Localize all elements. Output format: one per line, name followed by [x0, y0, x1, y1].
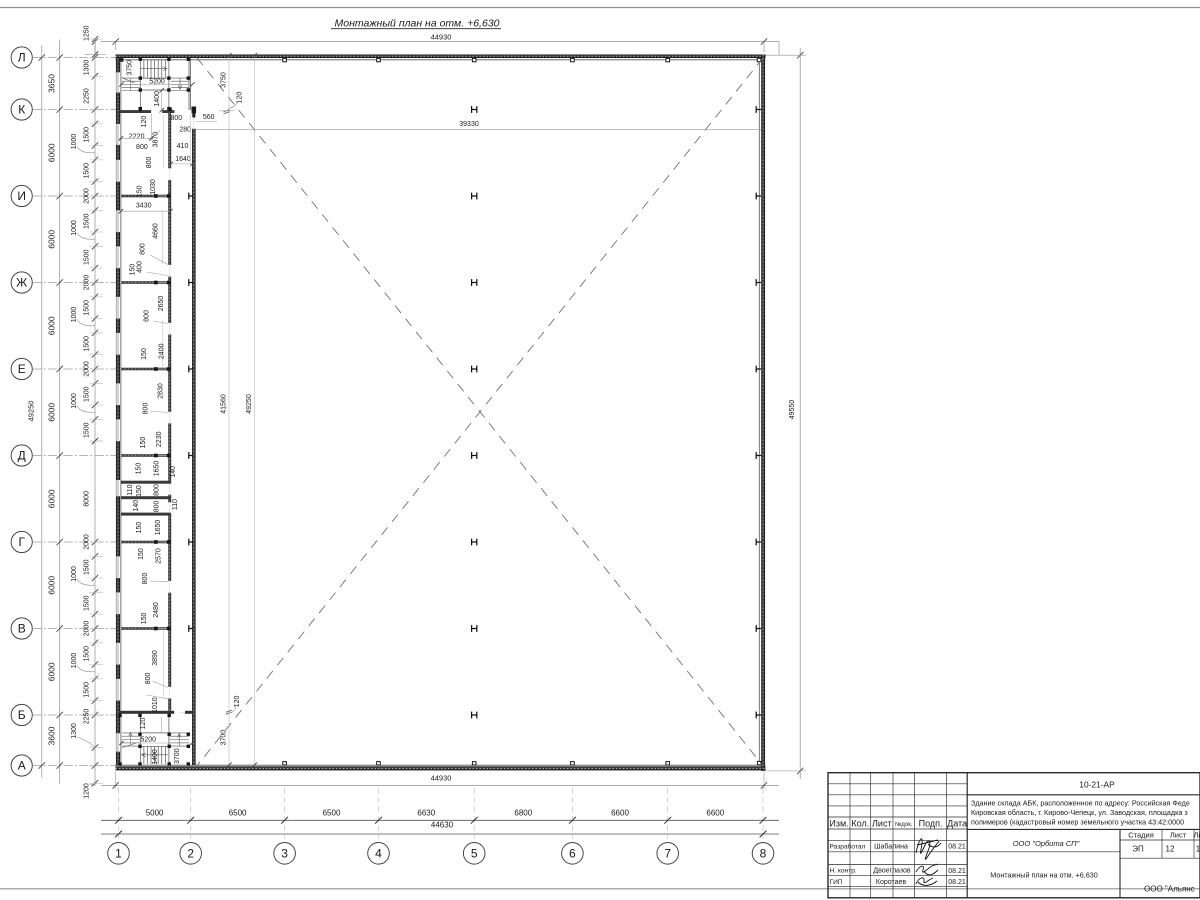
svg-text:800: 800 — [136, 144, 148, 151]
svg-text:49250: 49250 — [27, 401, 36, 422]
svg-text:12: 12 — [1166, 845, 1175, 854]
svg-text:1500: 1500 — [84, 422, 91, 438]
svg-text:140: 140 — [133, 500, 140, 512]
svg-text:39330: 39330 — [459, 121, 479, 128]
svg-text:800: 800 — [144, 310, 151, 322]
svg-text:Здание склада АБК, расположенн: Здание склада АБК, расположенное по адре… — [971, 798, 1190, 807]
svg-text:Ж: Ж — [16, 276, 27, 290]
svg-text:3700: 3700 — [174, 748, 181, 764]
svg-text:Лист: Лист — [1170, 830, 1187, 839]
svg-text:5200: 5200 — [141, 737, 157, 744]
svg-text:6000: 6000 — [47, 489, 57, 508]
svg-text:Изм.: Изм. — [829, 818, 848, 828]
svg-text:280: 280 — [179, 127, 191, 134]
svg-text:6000: 6000 — [47, 576, 57, 595]
svg-text:2570: 2570 — [156, 548, 163, 564]
svg-text:800: 800 — [146, 156, 153, 168]
svg-text:Л: Л — [18, 51, 26, 65]
svg-text:2000: 2000 — [84, 621, 91, 637]
svg-text:150: 150 — [130, 264, 137, 276]
svg-text:6630: 6630 — [417, 808, 435, 817]
svg-text:5: 5 — [471, 847, 478, 861]
svg-text:ГИП: ГИП — [830, 879, 843, 886]
svg-text:800: 800 — [142, 573, 149, 585]
svg-text:1640: 1640 — [175, 156, 191, 163]
svg-text:1000: 1000 — [71, 134, 78, 150]
svg-text:49550: 49550 — [789, 400, 796, 420]
svg-text:В: В — [18, 622, 26, 636]
svg-text:1300: 1300 — [71, 723, 78, 739]
svg-text:6000: 6000 — [47, 316, 57, 335]
svg-text:8000: 8000 — [84, 491, 91, 507]
svg-text:Монтажный план на отм. +6,630: Монтажный план на отм. +6,630 — [990, 871, 1097, 880]
svg-text:Г: Г — [18, 535, 25, 549]
svg-text:Ли: Ли — [1193, 830, 1200, 839]
svg-text:Разработал: Разработал — [830, 842, 866, 850]
svg-text:3750: 3750 — [221, 72, 228, 88]
svg-text:Д: Д — [18, 449, 26, 463]
svg-text:560: 560 — [203, 114, 215, 121]
svg-text:150: 150 — [136, 485, 143, 497]
svg-text:А: А — [18, 759, 26, 773]
svg-text:150: 150 — [136, 522, 143, 534]
svg-text:2000: 2000 — [84, 188, 91, 204]
svg-text:Подп.: Подп. — [919, 818, 943, 828]
svg-text:49250: 49250 — [246, 394, 253, 414]
svg-text:1500: 1500 — [84, 559, 91, 575]
svg-text:№док.: №док. — [895, 821, 913, 828]
svg-text:5000: 5000 — [146, 808, 164, 817]
svg-text:150: 150 — [141, 348, 148, 360]
svg-text:1650: 1650 — [155, 520, 162, 536]
svg-text:2000: 2000 — [84, 275, 91, 291]
svg-text:1650: 1650 — [154, 461, 161, 477]
svg-text:800: 800 — [140, 243, 147, 255]
svg-text:410: 410 — [177, 143, 189, 150]
svg-text:140: 140 — [170, 466, 177, 478]
svg-text:150: 150 — [138, 548, 145, 560]
svg-text:1500: 1500 — [84, 127, 91, 143]
svg-text:400: 400 — [136, 261, 143, 273]
svg-text:1400: 1400 — [154, 91, 161, 107]
svg-text:3600: 3600 — [47, 726, 57, 745]
svg-text:1500: 1500 — [84, 163, 91, 179]
svg-text:6500: 6500 — [323, 808, 341, 817]
svg-text:2250: 2250 — [84, 88, 91, 104]
svg-text:полимеров (кадастровый номер з: полимеров (кадастровый номер земельного … — [971, 818, 1184, 827]
svg-text:120: 120 — [234, 695, 241, 707]
svg-text:1000: 1000 — [71, 220, 78, 236]
svg-text:150: 150 — [136, 463, 143, 475]
svg-text:Е: Е — [18, 362, 26, 376]
svg-text:1500: 1500 — [84, 595, 91, 611]
svg-text:6800: 6800 — [514, 808, 532, 817]
svg-text:1030: 1030 — [150, 179, 157, 195]
svg-text:И: И — [17, 189, 26, 203]
svg-text:3890: 3890 — [152, 650, 159, 666]
svg-text:Кировская область, г. Кирово-Ч: Кировская область, г. Кирово-Чепецк, ул.… — [971, 808, 1188, 817]
svg-text:120: 120 — [141, 116, 148, 128]
svg-text:6600: 6600 — [706, 808, 724, 817]
svg-text:110: 110 — [127, 484, 134, 495]
svg-text:2: 2 — [187, 847, 194, 861]
svg-text:Кол.: Кол. — [851, 818, 869, 828]
svg-text:6500: 6500 — [229, 808, 247, 817]
svg-text:6600: 6600 — [611, 808, 629, 817]
svg-text:3430: 3430 — [136, 202, 152, 209]
svg-text:3: 3 — [281, 847, 288, 861]
svg-text:150: 150 — [141, 612, 148, 624]
svg-text:1300: 1300 — [84, 60, 91, 76]
svg-text:3870: 3870 — [152, 132, 159, 148]
svg-text:800: 800 — [153, 484, 160, 496]
svg-text:Б: Б — [18, 708, 26, 722]
svg-text:1500: 1500 — [84, 249, 91, 265]
svg-text:Н. контр.: Н. контр. — [830, 868, 857, 875]
svg-text:6: 6 — [569, 847, 576, 861]
svg-text:1010: 1010 — [152, 697, 159, 713]
svg-text:Дата: Дата — [947, 818, 967, 828]
svg-text:2220: 2220 — [129, 133, 145, 140]
svg-text:800: 800 — [170, 115, 182, 122]
svg-text:1000: 1000 — [71, 307, 78, 323]
svg-text:2000: 2000 — [84, 361, 91, 377]
svg-text:1250: 1250 — [84, 25, 91, 41]
svg-text:1500: 1500 — [84, 213, 91, 229]
svg-text:150: 150 — [140, 437, 147, 449]
svg-text:44930: 44930 — [431, 32, 452, 41]
svg-text:1000: 1000 — [71, 653, 78, 669]
svg-text:Лист: Лист — [872, 818, 892, 828]
svg-text:110: 110 — [172, 499, 179, 510]
svg-text:1400: 1400 — [152, 749, 159, 765]
svg-text:1500: 1500 — [84, 682, 91, 698]
svg-text:1: 1 — [115, 847, 122, 861]
svg-text:2230: 2230 — [156, 431, 163, 447]
svg-text:1500: 1500 — [84, 300, 91, 316]
svg-text:К: К — [18, 103, 25, 117]
svg-text:Шабалина: Шабалина — [874, 842, 908, 850]
svg-text:800: 800 — [153, 500, 160, 512]
svg-text:6000: 6000 — [47, 662, 57, 681]
svg-text:41560: 41560 — [221, 394, 228, 414]
svg-text:6000: 6000 — [47, 230, 57, 249]
svg-text:3750: 3750 — [127, 60, 134, 76]
svg-text:800: 800 — [143, 403, 150, 415]
svg-text:08.21: 08.21 — [948, 844, 966, 851]
svg-text:ООО "Орбита СП": ООО "Орбита СП" — [1013, 839, 1080, 848]
svg-text:5200: 5200 — [149, 79, 165, 86]
svg-text:2000: 2000 — [84, 534, 91, 550]
svg-text:Стадия: Стадия — [1128, 830, 1154, 839]
svg-text:1000: 1000 — [71, 393, 78, 409]
svg-text:1000: 1000 — [71, 566, 78, 582]
svg-text:1500: 1500 — [84, 386, 91, 402]
svg-text:2650: 2650 — [158, 296, 165, 312]
svg-text:Двоеглазов: Двоеглазов — [873, 868, 910, 875]
svg-text:ООО "Альянс: ООО "Альянс — [1144, 885, 1195, 894]
svg-text:6000: 6000 — [47, 143, 57, 162]
svg-text:Коротаев: Коротаев — [876, 879, 907, 886]
svg-text:10-21-АР: 10-21-АР — [1079, 780, 1115, 790]
svg-text:1500: 1500 — [84, 646, 91, 662]
svg-text:1200: 1200 — [84, 783, 91, 799]
svg-text:2250: 2250 — [84, 709, 91, 725]
svg-text:1: 1 — [1196, 845, 1200, 854]
svg-text:2830: 2830 — [158, 383, 165, 399]
svg-text:6000: 6000 — [47, 403, 57, 422]
svg-text:ЭП: ЭП — [1132, 845, 1144, 854]
svg-text:2400: 2400 — [159, 343, 166, 359]
svg-text:1500: 1500 — [84, 336, 91, 352]
svg-text:08.21: 08.21 — [948, 879, 966, 886]
svg-text:4660: 4660 — [152, 223, 159, 239]
svg-text:Монтажный план на отм. +6,630: Монтажный план на отм. +6,630 — [335, 17, 500, 29]
svg-text:150: 150 — [136, 185, 143, 197]
svg-text:2480: 2480 — [153, 602, 160, 618]
svg-text:800: 800 — [145, 672, 152, 684]
svg-text:7: 7 — [664, 847, 671, 861]
svg-text:4: 4 — [375, 847, 382, 861]
svg-text:44930: 44930 — [431, 774, 452, 783]
svg-text:120: 120 — [140, 717, 147, 729]
svg-text:8: 8 — [760, 847, 767, 861]
svg-text:3700: 3700 — [221, 730, 228, 746]
svg-text:08.21: 08.21 — [948, 868, 966, 875]
svg-text:3650: 3650 — [47, 74, 57, 93]
svg-text:44630: 44630 — [431, 821, 454, 830]
